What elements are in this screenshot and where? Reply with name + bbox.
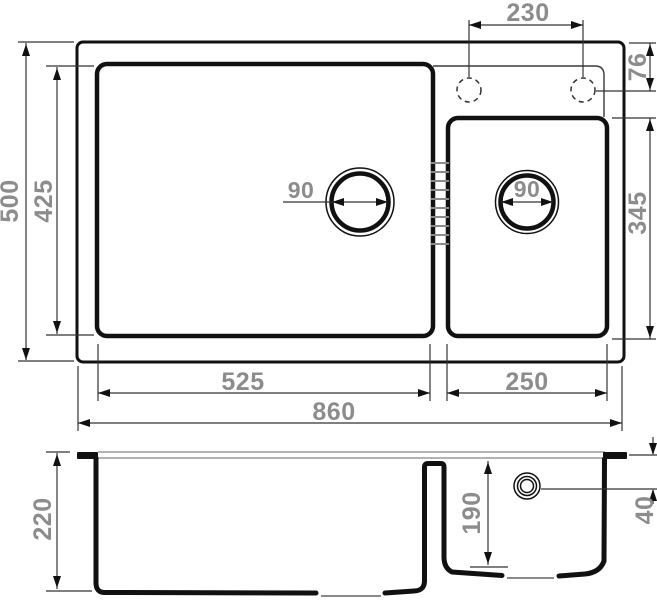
technical-drawing: 230 76 345 500 [0,0,657,600]
sink-drawing-canvas: 230 76 345 500 [0,0,657,600]
faucet-hole-left [457,78,481,102]
dim-230-label: 230 [506,0,549,27]
dim-525-label: 525 [221,368,264,396]
dim-40-label: 40 [631,496,657,525]
dim-90-main-label: 90 [288,177,315,203]
dim-small-bowl-length: 345 [612,118,656,339]
faucet-deck-edge [433,66,604,117]
dim-faucet-offset: 76 [596,43,656,91]
main-bowl [97,64,433,336]
small-bowl-profile-right [559,459,605,576]
dim-inner-depth: 425 [30,66,94,335]
dim-overall-height: 220 [29,452,92,591]
faucet-hole-right [571,78,595,102]
dim-425-label: 425 [30,179,58,222]
side-view: 220 190 40 [29,437,657,596]
dim-500-label: 500 [0,179,24,222]
dim-90-small-label: 90 [514,176,541,202]
dim-250-label: 250 [505,368,548,396]
dim-main-bowl-width: 525 [98,344,430,401]
dim-345-label: 345 [624,191,652,234]
dim-190-label: 190 [458,491,486,534]
main-bowl-profile-left [96,458,316,593]
dim-860-label: 860 [312,398,355,426]
dim-220-label: 220 [29,497,57,540]
dim-small-bowl-depth: 190 [458,461,508,567]
overflow-hole [514,473,540,499]
dim-76-label: 76 [624,53,652,82]
dim-small-bowl-width: 250 [447,344,607,401]
top-view: 230 76 345 500 [0,0,656,431]
dim-overflow-offset: 40 [541,437,657,524]
